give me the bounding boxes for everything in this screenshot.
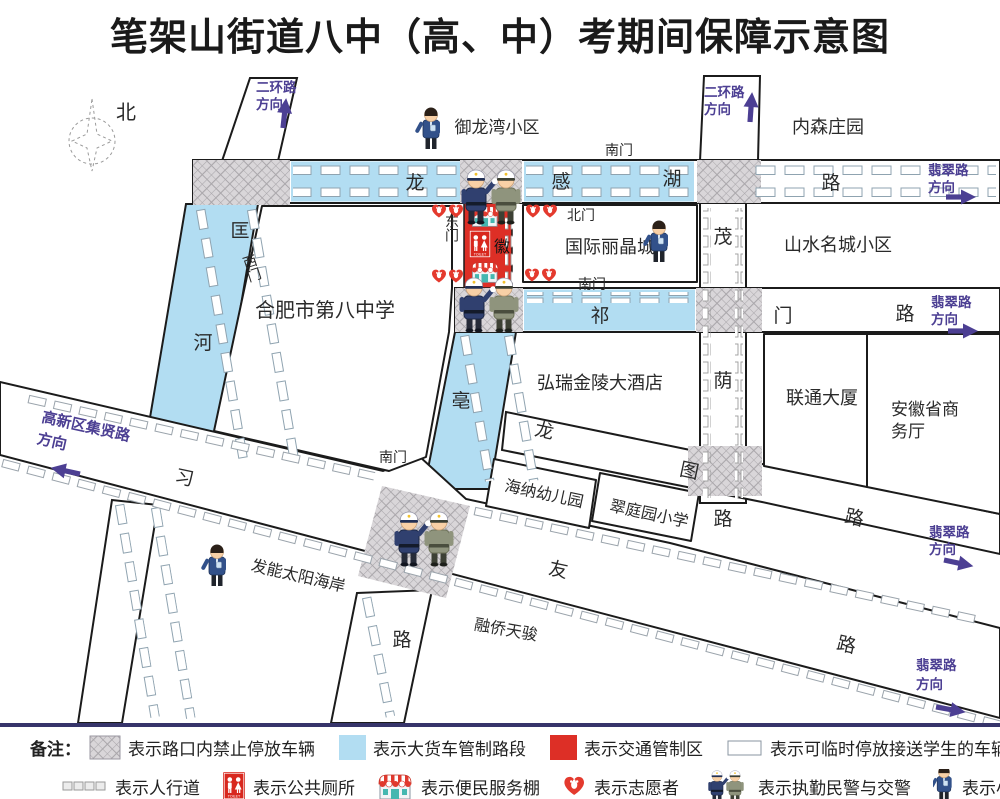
lane-dashes (293, 187, 458, 198)
sign-feicui-longtu: 翡翠路 (929, 524, 970, 540)
road-label-maoyin-2: 荫 (713, 370, 732, 392)
service-shed-icon (377, 772, 414, 799)
road-label-longganhu-1: 龙 (405, 172, 424, 194)
road-label-longganhu-3: 湖 (662, 168, 681, 190)
gate-south-school: 南门 (379, 449, 407, 465)
legend-item-police: 表示执勤民警与交警 (701, 768, 911, 799)
road-label-kuanghe-2: 河 (193, 332, 212, 354)
legend-item-sidewalk: 表示人行道 (62, 774, 200, 799)
legend-text: 表示可临时停放接送学生的车辆 禁止双排停放 (770, 735, 1000, 760)
public-toilet-icon (222, 771, 246, 799)
police-pair-icon (701, 768, 751, 799)
map-legend-divider (0, 723, 1000, 727)
place-neisen: 内森庄园 (792, 117, 864, 137)
sidewalk (703, 208, 711, 498)
schematic-map: TOILET (0, 60, 1000, 723)
legend-item-traffic-control: 表示交通管制区 (550, 735, 703, 760)
lane-dashes (503, 332, 539, 482)
legend-text: 表示便民服务棚 (421, 774, 540, 799)
sign-feicui-qimen: 翡翠路 (931, 294, 972, 310)
sign-erhuan-east: 二环路 (704, 84, 745, 100)
exam-security-map-page: 笔架山街道八中（高、中）考期间保障示意图 (0, 0, 1000, 799)
sign-feicui-xiyou-2: 方向 (916, 676, 943, 692)
legend-row-1: 备注： 表示路口内禁止停放车辆 表示大货车管制路段 表示交通管制区 表示可临时停… (30, 735, 1000, 760)
road-label-kuanghe-1: 匡 (230, 221, 249, 242)
sign-feicui-longtu-2: 方向 (929, 541, 956, 557)
sidewalk-icon (62, 780, 108, 792)
road-label-qimen-3: 路 (895, 303, 914, 325)
road-label-longganhu-2: 感 (551, 171, 570, 193)
volunteer-heart-icon (562, 775, 587, 797)
legend-item-toilet: 表示公共厕所 (222, 771, 355, 799)
legend-text: 表示人行道 (115, 774, 200, 799)
sign-erhuan-west: 二环路 (256, 79, 297, 95)
sidewalk (735, 208, 743, 498)
gate-east-school: 东门 (444, 214, 460, 243)
place-faneng: 发能太阳海岸 (249, 557, 347, 596)
legend-item-truck-control: 表示大货车管制路段 (339, 735, 526, 760)
block-liantong (764, 334, 867, 487)
road-label-longganhu-4: 路 (821, 172, 840, 194)
block-shangwu (867, 334, 1000, 514)
legend-row-2: 表示人行道 表示公共厕所 表示便民服务棚 表示志愿者 表示执勤民警与交警 表示小… (62, 768, 1000, 799)
legend-text: 表示公共厕所 (253, 774, 355, 799)
sign-erhuan-east-2: 方向 (704, 101, 731, 117)
place-bazhong: 合肥市第八中学 (255, 299, 395, 322)
legend-text: 表示志愿者 (594, 774, 679, 799)
gate-south-yulongwan: 南门 (605, 142, 633, 158)
sign-feicui-top-2: 方向 (928, 179, 955, 195)
road-label-maoyin-1: 茂 (713, 226, 732, 248)
legend-text: 表示路口内禁止停放车辆 (128, 735, 315, 760)
legend-label: 备注： (30, 735, 81, 760)
sign-feicui-qimen-2: 方向 (931, 311, 958, 327)
legend-item-shed: 表示便民服务棚 (377, 772, 540, 799)
no-parking-swatch (89, 735, 121, 760)
place-hongrui: 弘瑞金陵大酒店 (537, 373, 663, 393)
road-label-qimen-2: 门 (773, 305, 792, 327)
place-shangwu-2: 务厅 (891, 422, 925, 441)
place-shanshui: 山水名城小区 (784, 235, 892, 255)
legend-item-no-parking: 表示路口内禁止停放车辆 (89, 735, 315, 760)
sign-feicui-xiyou: 翡翠路 (916, 657, 957, 673)
place-shangwu-1: 安徽省商 (891, 400, 959, 419)
road-label-maoyin-3: 路 (713, 508, 732, 530)
place-rongqiao: 融侨天骏 (473, 616, 539, 645)
gate-south-guoji: 南门 (578, 276, 606, 292)
legend-item-grid-worker: 表示小区网格长 (933, 769, 1000, 799)
legend-item-volunteer: 表示志愿者 (562, 774, 679, 799)
grid-worker-icon (933, 769, 955, 799)
place-guoji: 国际丽晶城 (565, 237, 655, 257)
grid-worker-icon (201, 545, 226, 587)
place-liantong: 联通大厦 (786, 388, 858, 408)
lane-dashes (293, 164, 458, 175)
grid-worker-icon (415, 108, 440, 150)
no-parking-zone (193, 160, 290, 205)
legend-text: 表示小区网格长 (962, 774, 1000, 799)
legend-text: 表示交通管制区 (584, 735, 703, 760)
road-label-qimen-1: 祁 (590, 305, 609, 327)
road-label-center-1: 徽 (494, 238, 510, 256)
gate-north-guoji: 北门 (567, 207, 595, 223)
traffic-control-swatch (550, 735, 577, 760)
page-title: 笔架山街道八中（高、中）考期间保障示意图 (0, 6, 1000, 61)
public-toilet-icon (469, 230, 491, 258)
road-label-center-2: 亳 (451, 390, 470, 412)
compass-north-label: 北 (116, 101, 136, 124)
legend-text: 表示大货车管制路段 (373, 735, 526, 760)
sign-feicui-top: 翡翠路 (928, 162, 969, 178)
road-label-center-3: 路 (392, 629, 411, 651)
truck-control-swatch (339, 735, 366, 760)
lane-dashes (150, 504, 196, 719)
no-parking-zone (688, 446, 762, 496)
legend-text: 表示执勤民警与交警 (758, 774, 911, 799)
legend-item-temp-parking: 表示可临时停放接送学生的车辆 禁止双排停放 (727, 735, 1000, 760)
road-label-longtu-3: 路 (843, 505, 866, 530)
lane-dashes (527, 292, 693, 303)
place-yulongwan: 御龙湾小区 (455, 118, 540, 137)
compass: 北 (69, 99, 136, 171)
temp-parking-swatch (727, 739, 763, 757)
